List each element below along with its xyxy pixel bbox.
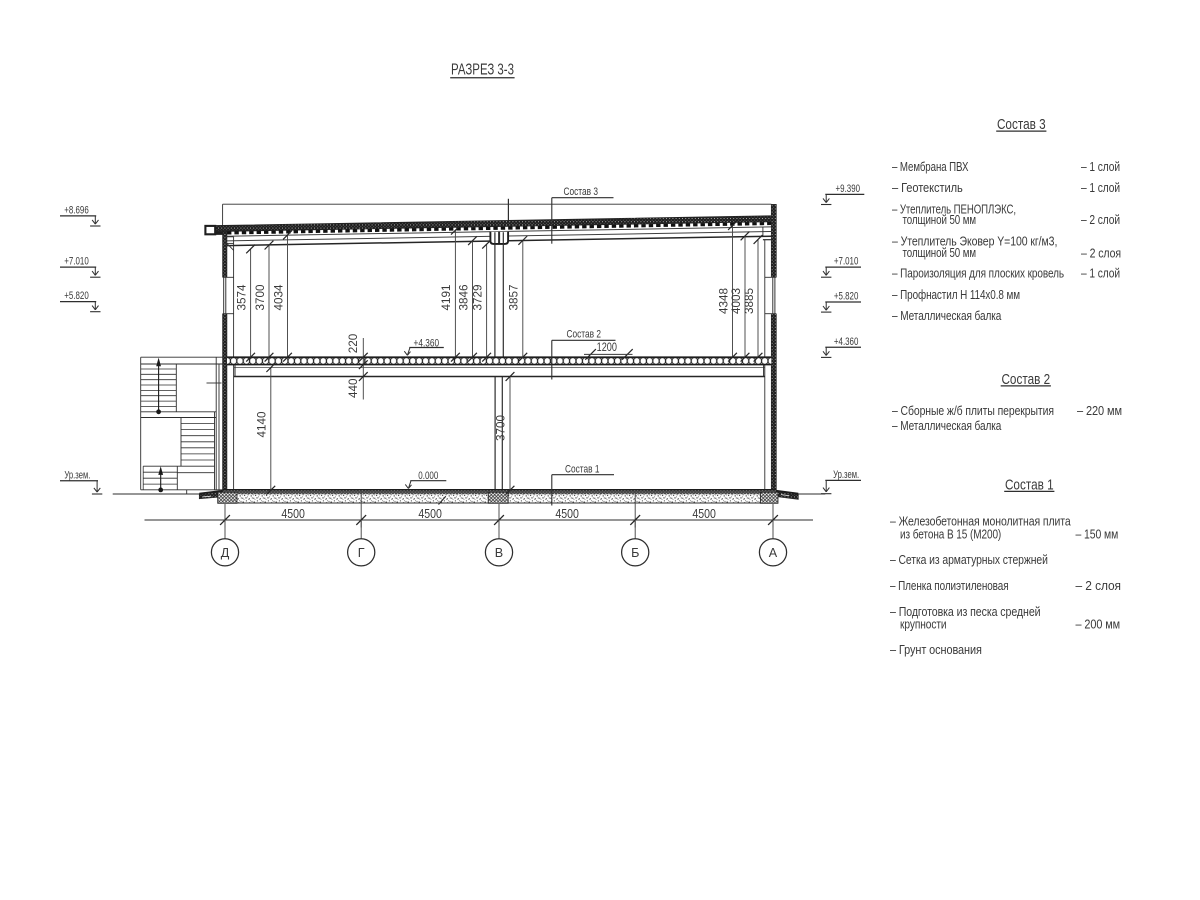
svg-text:+7.010: +7.010 — [834, 256, 859, 268]
svg-text:– 220 мм: – 220 мм — [1077, 403, 1122, 418]
svg-text:4191: 4191 — [439, 284, 453, 310]
svg-text:+5.820: +5.820 — [64, 290, 89, 302]
svg-text:– Мембрана ПВХ: – Мембрана ПВХ — [892, 159, 969, 174]
svg-text:3885: 3885 — [742, 288, 756, 314]
svg-text:4140: 4140 — [254, 411, 268, 437]
svg-text:– Сборные ж/б плиты перекрытия: – Сборные ж/б плиты перекрытия — [892, 403, 1054, 418]
svg-text:4500: 4500 — [281, 507, 305, 521]
svg-text:– 200 мм: – 200 мм — [1076, 617, 1121, 632]
svg-text:– Профнастил Н 114х0.8 мм: – Профнастил Н 114х0.8 мм — [892, 287, 1020, 302]
svg-text:Состав 3: Состав 3 — [564, 186, 599, 198]
svg-text:РАЗРЕЗ 3-3: РАЗРЕЗ 3-3 — [451, 62, 514, 79]
svg-text:толщиной 50 мм: толщиной 50 мм — [903, 212, 977, 227]
svg-text:+7.010: +7.010 — [64, 256, 89, 268]
svg-text:4003: 4003 — [729, 288, 743, 314]
svg-text:толщиной 50 мм: толщиной 50 мм — [903, 245, 977, 260]
svg-text:Ур.зем.: Ур.зем. — [833, 469, 859, 481]
svg-text:Состав 2: Состав 2 — [567, 329, 602, 341]
svg-text:– Грунт основания: – Грунт основания — [890, 642, 982, 657]
svg-text:– Металлическая балка: – Металлическая балка — [892, 308, 1002, 323]
svg-text:4500: 4500 — [555, 507, 579, 521]
svg-text:Состав 1: Состав 1 — [565, 463, 600, 475]
svg-text:4500: 4500 — [418, 507, 442, 521]
svg-text:В: В — [495, 546, 503, 560]
svg-text:– Металлическая балка: – Металлическая балка — [892, 418, 1002, 433]
svg-text:4034: 4034 — [271, 284, 285, 310]
svg-text:3700: 3700 — [253, 284, 267, 310]
svg-text:Б: Б — [631, 546, 639, 560]
svg-text:3700: 3700 — [494, 415, 508, 441]
svg-text:А: А — [769, 546, 778, 560]
svg-text:– 2 слоя: – 2 слоя — [1076, 578, 1121, 593]
svg-text:– Пленка полиэтиленовая: – Пленка полиэтиленовая — [890, 578, 1009, 593]
svg-text:Г: Г — [358, 546, 365, 560]
svg-text:+4.360: +4.360 — [834, 336, 859, 348]
svg-text:220: 220 — [346, 333, 360, 353]
svg-text:– Геотекстиль: – Геотекстиль — [892, 180, 963, 195]
svg-text:крупности: крупности — [900, 617, 947, 632]
svg-text:3846: 3846 — [456, 284, 470, 310]
svg-text:3574: 3574 — [234, 284, 248, 310]
svg-text:+8.696: +8.696 — [64, 205, 89, 217]
svg-text:Д: Д — [221, 546, 230, 560]
svg-text:1200: 1200 — [597, 340, 618, 354]
svg-text:– Сетка из арматурных стержней: – Сетка из арматурных стержней — [890, 552, 1048, 567]
svg-text:Ур.зем.: Ур.зем. — [64, 469, 90, 481]
svg-text:– 1 слой: – 1 слой — [1081, 266, 1120, 281]
svg-text:– 1 слой: – 1 слой — [1081, 159, 1120, 174]
svg-text:4500: 4500 — [692, 507, 716, 521]
svg-text:440: 440 — [346, 378, 360, 398]
svg-text:+9.390: +9.390 — [836, 183, 861, 195]
svg-text:– 150 мм: – 150 мм — [1076, 527, 1119, 542]
svg-text:из бетона В 15 (М200): из бетона В 15 (М200) — [900, 527, 1001, 542]
svg-text:3729: 3729 — [470, 284, 484, 310]
svg-text:– 1 слой: – 1 слой — [1081, 180, 1120, 195]
svg-text:3857: 3857 — [507, 284, 521, 310]
svg-text:– Пароизоляция для плоских кро: – Пароизоляция для плоских кровель — [892, 266, 1064, 281]
svg-text:– 2 слой: – 2 слой — [1081, 212, 1120, 227]
svg-text:– 2 слоя: – 2 слоя — [1081, 245, 1121, 260]
svg-text:+5.820: +5.820 — [834, 291, 859, 303]
